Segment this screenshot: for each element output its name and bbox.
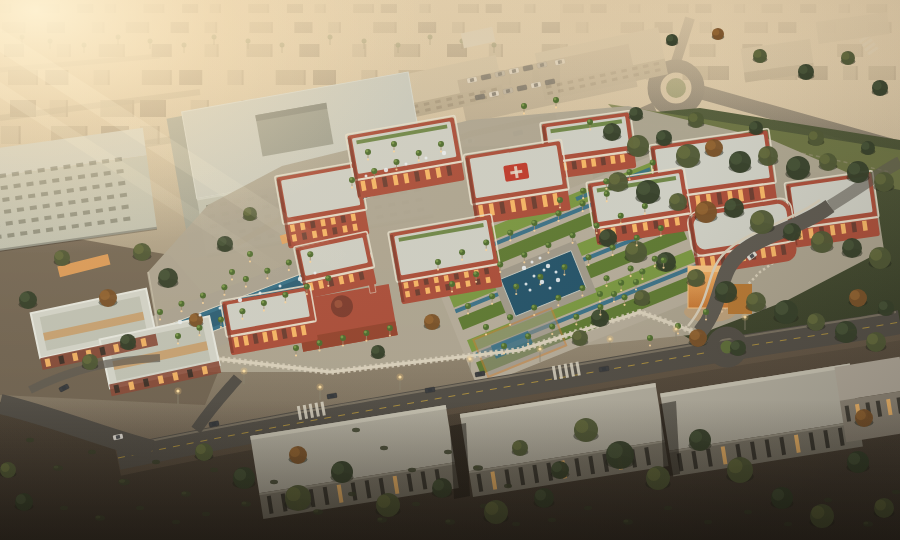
aerial-campus-render bbox=[0, 0, 900, 540]
bottom-vignette bbox=[0, 400, 900, 540]
architectural-rendering bbox=[0, 0, 900, 540]
